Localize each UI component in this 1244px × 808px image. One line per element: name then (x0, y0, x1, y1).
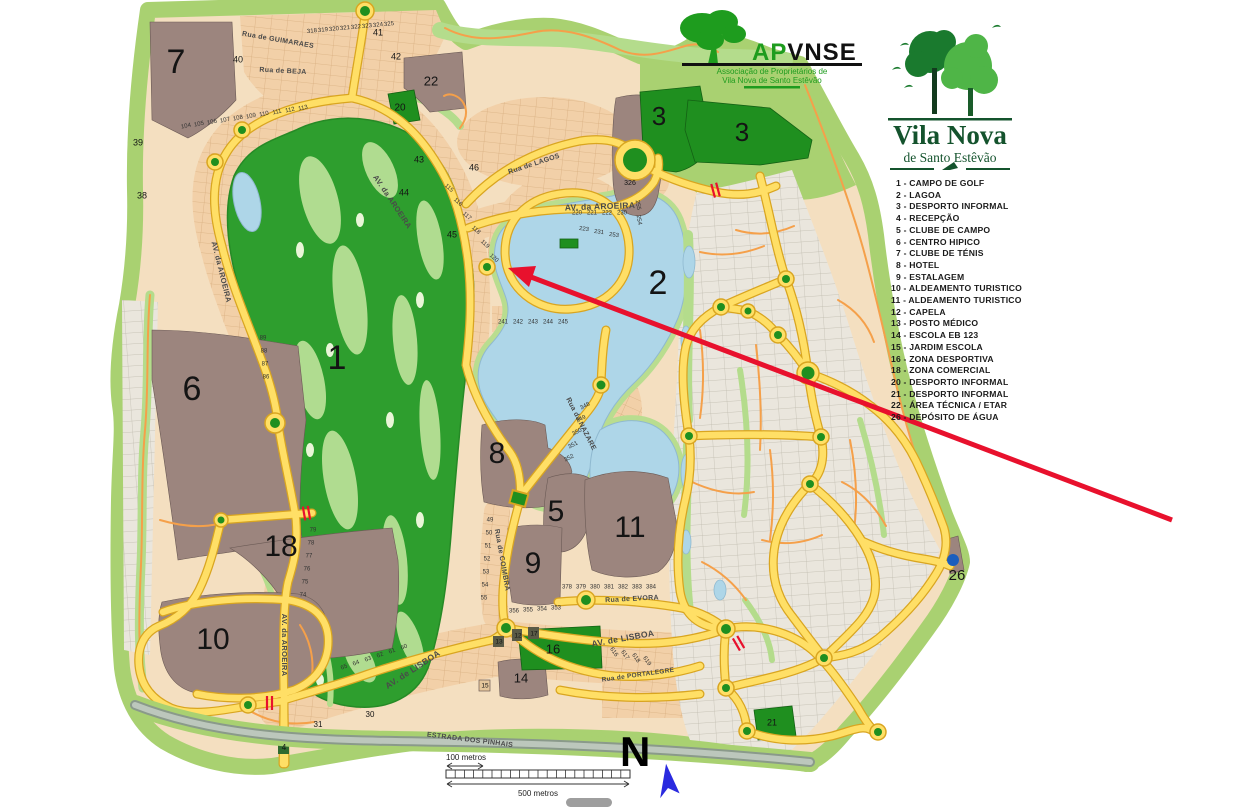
zone-label: 18 (264, 530, 297, 563)
plot-number: 230 (617, 211, 628, 217)
plot-number: 354 (537, 607, 548, 613)
zone-label: 3 (735, 117, 749, 147)
zone-label: 6 (183, 370, 202, 408)
zone-label: 45 (447, 229, 457, 239)
plot-number: 321 (340, 25, 351, 32)
plot-number: 49 (487, 518, 494, 524)
plot-number: 323 (362, 23, 373, 30)
apvnse-tree-icon (680, 10, 746, 64)
zone-label: 46 (469, 162, 479, 172)
plot-number: 55 (481, 596, 488, 602)
legend-item: 12 - CAPELA (891, 307, 1091, 319)
zone-label: 7 (167, 43, 186, 81)
zone-label: 26 (949, 567, 966, 584)
legend-item: 21 - DESPORTO INFORMAL (891, 389, 1091, 401)
plot-number: 384 (646, 585, 657, 591)
legend-item: 2 - LAGOA (891, 190, 1091, 202)
zone-label: 40 (233, 54, 243, 64)
zone-label: 8 (489, 437, 506, 470)
scale-small-label: 100 metros (446, 753, 486, 762)
plot-number: 87 (262, 362, 269, 368)
plot-number: 88 (261, 349, 268, 355)
zone-label: 16 (546, 641, 560, 656)
legend-item: 20 - DESPORTO INFORMAL (891, 377, 1091, 389)
map-legend: 1 - CAMPO DE GOLF 2 - LAGOA 3 - DESPORTO… (891, 178, 1091, 424)
legend-item: 11 - ALDEAMENTO TURISTICO (891, 295, 1091, 307)
legend-item: 14 - ESCOLA EB 123 (891, 330, 1091, 342)
apvnse-acronym: APVNSE (752, 39, 857, 66)
zone-label: 12 (514, 633, 522, 640)
plot-number: 245 (558, 320, 569, 326)
plot-number: 75 (302, 580, 309, 586)
plot-number: 79 (310, 528, 317, 534)
plot-number: 221 (587, 211, 598, 217)
plot-number: 244 (543, 320, 554, 326)
legend-item: 3 - DESPORTO INFORMAL (891, 201, 1091, 213)
legend-item: 5 - CLUBE DE CAMPO (891, 225, 1091, 237)
apvnse-subtitle-1: Associação de Proprietários de (717, 67, 828, 76)
plot-number: 324 (373, 22, 384, 29)
plot-number: 220 (572, 211, 583, 217)
zone-label: 22 (424, 73, 438, 88)
apvnse-subtitle-underline (744, 86, 800, 89)
legend-item: 1 - CAMPO DE GOLF (891, 178, 1091, 190)
plot-number: 322 (351, 24, 362, 31)
plot-number: 318 (307, 28, 318, 35)
plot-number: 76 (304, 567, 311, 573)
plot-number: 353 (551, 606, 562, 612)
scale-small-arrow (447, 763, 483, 769)
zone-label: 31 (314, 720, 323, 729)
scale-large-arrow (447, 781, 629, 787)
zone-label: 4 (282, 743, 287, 752)
zone-label: 20 (394, 103, 406, 114)
plot-number: 222 (602, 211, 613, 217)
legend-item: 18 - ZONA COMERCIAL (891, 365, 1091, 377)
zone-label: 9 (525, 547, 542, 580)
clubhouse-building (509, 490, 528, 507)
apvnse-logo: APVNSE Associação de Proprietários de Vi… (664, 4, 876, 95)
plot-number: 380 (590, 585, 601, 591)
zone-label: 3 (652, 101, 666, 131)
legend-item: 7 - CLUBE DE TÉNIS (891, 248, 1091, 260)
zone-label: 43 (414, 154, 424, 164)
plot-number: 319 (318, 27, 329, 34)
street-label: AV. da AROEIRA (280, 614, 289, 677)
zone-label: 42 (391, 51, 401, 61)
zone-label: 17 (530, 631, 538, 638)
plot-number: 89 (260, 336, 267, 342)
plot-number: 383 (632, 585, 643, 591)
plot-number: 242 (513, 320, 524, 326)
zone-label: 44 (399, 187, 409, 197)
scale-gray-marker (566, 798, 612, 807)
plot-number: 74 (300, 593, 307, 599)
plot-number: 243 (528, 320, 539, 326)
legend-item: 6 - CENTRO HIPICO (891, 237, 1091, 249)
resort-map-page: 1233567891011141618202122263263031383940… (0, 0, 1244, 808)
zone-label: 21 (767, 717, 777, 727)
zone-label: 5 (548, 495, 565, 528)
zone-label: 30 (366, 710, 375, 719)
zone-label: 10 (196, 623, 229, 656)
scale-ruler-ticks (446, 770, 630, 778)
vila-nova-title: Vila Nova (893, 120, 1007, 150)
vila-nova-subtitle: de Santo Estêvão (904, 150, 997, 165)
legend-item: 13 - POSTO MÉDICO (891, 318, 1091, 330)
zone-label: 38 (137, 190, 147, 200)
zone-label: 14 (514, 670, 528, 685)
plot-number: 382 (618, 585, 629, 591)
zone-label: 1 (328, 339, 347, 377)
legend-item: 16 - ZONA DESPORTIVA (891, 354, 1091, 366)
legend-item: 26 - DEPÓSITO DE ÁGUA (891, 412, 1091, 424)
zone-label: 39 (133, 137, 143, 147)
legend-item: 10 - ALDEAMENTO TURISTICO (891, 283, 1091, 295)
zone-label: 326 (624, 180, 636, 187)
vila-nova-trees-icon (892, 25, 1001, 116)
plot-number: 51 (485, 544, 492, 550)
legend-item: 8 - HOTEL (891, 260, 1091, 272)
plot-number: 50 (486, 531, 493, 537)
plot-number: 53 (483, 570, 490, 576)
zone-label: 11 (614, 511, 645, 544)
scale-bar: 100 metros 500 metros (438, 750, 653, 808)
north-arrow-icon (652, 762, 682, 803)
plot-number: 78 (308, 541, 315, 547)
plot-number: 241 (498, 320, 509, 326)
plot-number: 378 (562, 585, 573, 591)
plot-number: 54 (482, 583, 489, 589)
legend-item: 9 - ESTALAGEM (891, 272, 1091, 284)
plot-number: 320 (329, 26, 340, 33)
plot-number: 325 (384, 21, 395, 28)
zone-label: 13 (495, 639, 503, 646)
legend-item: 4 - RECEPÇÃO (891, 213, 1091, 225)
scale-large-label: 500 metros (518, 789, 558, 798)
legend-item: 22 - ÁREA TÉCNICA / ETAR (891, 400, 1091, 412)
plot-number: 381 (604, 585, 615, 591)
plot-number: 77 (306, 554, 313, 560)
deposito-agua-26-dot (947, 554, 959, 566)
plot-number: 52 (484, 557, 491, 563)
zone-label: 2 (649, 264, 668, 302)
legend-item: 15 - JARDIM ESCOLA (891, 342, 1091, 354)
plot-number: 86 (263, 375, 270, 381)
vila-nova-logo: Vila Nova de Santo Estêvão (884, 12, 1016, 177)
zone-label: 15 (481, 683, 489, 690)
plot-number: 379 (576, 585, 587, 591)
apvnse-subtitle-2: Vila Nova de Santo Estêvão (722, 76, 822, 85)
plot-number: 355 (523, 608, 534, 614)
plot-number: 356 (509, 609, 520, 615)
